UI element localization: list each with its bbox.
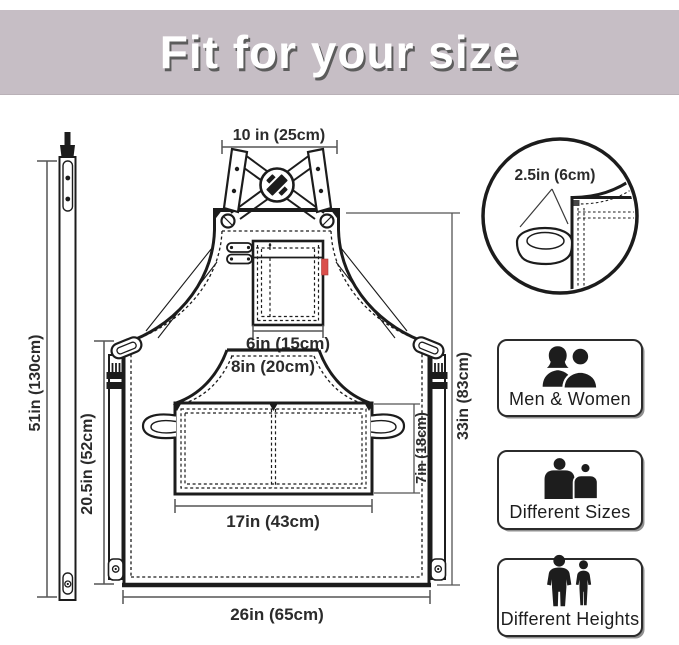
dim-apron-length-label: 33in (83cm): [455, 352, 472, 440]
strap-drawing: [60, 132, 76, 600]
dim-top-width-label: 10 in (25cm): [233, 127, 325, 144]
dim-pocket-top-label: 8in (20cm): [231, 357, 315, 376]
feature-label: Different Sizes: [509, 502, 630, 523]
red-tag: [322, 259, 329, 275]
front-pocket: [143, 403, 404, 494]
pen-loops: [227, 243, 252, 264]
dim-pocket-height-label: 7in (18cm): [414, 412, 430, 484]
dim-strap-length: 51in (130cm): [27, 161, 57, 597]
loop-detail-circle: 2.5in (6cm): [483, 139, 640, 293]
chest-pocket: [253, 241, 328, 325]
dim-pocket-width: 17in (43cm): [175, 499, 372, 531]
dim-side-length-label: 20.5in (52cm): [79, 413, 96, 514]
feature-box-men-women: Men & Women: [497, 339, 643, 417]
men-women-icon: [537, 339, 603, 389]
feature-box-different-heights: Different Heights: [497, 558, 643, 637]
dim-loop-width-label: 2.5in (6cm): [515, 167, 596, 184]
feature-label: Different Heights: [501, 609, 640, 630]
dim-apron-length: 33in (83cm): [346, 213, 472, 585]
towel-loop-left: [143, 414, 176, 438]
dim-strap-length-label: 51in (130cm): [27, 335, 44, 432]
dim-pocket-width-label: 17in (43cm): [226, 512, 320, 531]
feature-box-different-sizes: Different Sizes: [497, 450, 643, 530]
product-infographic: Fit for your size 51in (130cm) 20.5in (5…: [0, 0, 679, 645]
different-sizes-icon: [540, 452, 600, 502]
towel-loop-right: [371, 414, 404, 438]
feature-label: Men & Women: [509, 389, 631, 410]
hanging-loop: [517, 228, 572, 264]
dim-hem-width-label: 26in (65cm): [230, 605, 324, 624]
front-pocket-yoke: 8in (20cm): [176, 350, 370, 403]
different-heights-icon: [543, 549, 597, 609]
dim-hem-width: 26in (65cm): [123, 590, 430, 624]
